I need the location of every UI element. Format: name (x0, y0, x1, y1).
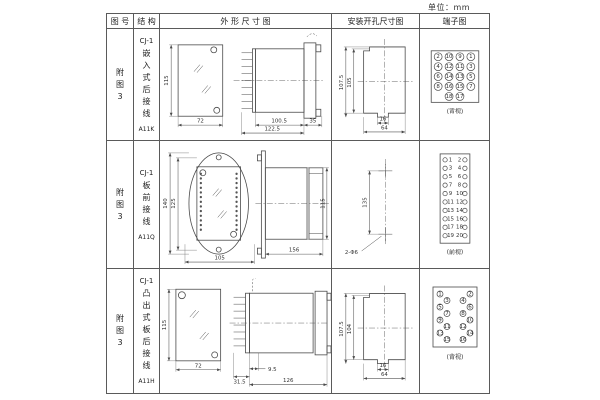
terminal-pins: 210914121136141358161571817 (434, 53, 475, 101)
fig-number-text: 附图3 (116, 187, 125, 223)
fig-number-row1: 附图3 (107, 29, 134, 141)
terminal-diagram-a11q: 1234567891011121314151617181920 (前视) (420, 141, 489, 268)
outline-drawing-cell-row1: 115 72 100.5 35 122.5 (160, 29, 332, 141)
svg-text:72: 72 (197, 119, 204, 125)
svg-text:5: 5 (449, 174, 452, 180)
svg-text:125: 125 (171, 198, 177, 208)
model-code-label: A11K (139, 126, 155, 133)
svg-text:2: 2 (458, 157, 461, 163)
view-label: (前视) (447, 248, 464, 256)
svg-text:105: 105 (215, 256, 225, 262)
terminal-diagram-cell-row1: 210914121136141358161571817 (背视) (420, 29, 489, 141)
model-label: CJ-1 (140, 37, 154, 45)
svg-text:10: 10 (456, 191, 463, 197)
terminal-pins: 12345678910111213141516 (437, 291, 474, 343)
svg-text:15: 15 (447, 216, 454, 222)
view-label: (背视) (447, 353, 464, 361)
svg-text:3: 3 (449, 166, 453, 172)
model-label: CJ-1 (140, 277, 154, 285)
svg-text:10: 10 (467, 317, 474, 323)
svg-text:135: 135 (363, 197, 369, 207)
header-terminal-diagram: 端子图 (420, 14, 489, 29)
svg-text:17: 17 (447, 225, 454, 231)
terminal-diagram-a11k: 210914121136141358161571817 (背视) (420, 29, 489, 140)
svg-text:2: 2 (468, 291, 472, 297)
svg-text:15: 15 (444, 337, 451, 343)
structure-row3: CJ-1 凸出式板后接线 A11H (134, 269, 160, 393)
svg-text:140: 140 (163, 198, 169, 209)
svg-text:1: 1 (469, 54, 472, 60)
svg-text:10: 10 (446, 54, 453, 60)
svg-text:16: 16 (379, 363, 386, 369)
model-label: CJ-1 (140, 169, 154, 177)
svg-text:64: 64 (381, 372, 388, 378)
svg-text:16: 16 (460, 337, 467, 343)
svg-text:9: 9 (458, 54, 462, 60)
header-mounting-holes: 安装开孔尺寸图 (332, 14, 420, 29)
fig-number-row2: 附图3 (107, 141, 134, 269)
mounting-drawing-cell-row3: 107.5 104 16 64 (332, 269, 420, 393)
outline-drawing-a11q: 140 125 105 156 115 (160, 141, 331, 268)
svg-text:11: 11 (447, 199, 454, 205)
svg-text:14: 14 (446, 74, 453, 80)
svg-text:126: 126 (283, 378, 294, 384)
svg-text:4: 4 (458, 166, 462, 172)
header-structure: 结 构 (134, 14, 160, 29)
view-label: (背视) (447, 107, 464, 115)
svg-text:107.5: 107.5 (339, 321, 345, 337)
svg-text:12: 12 (460, 324, 467, 330)
svg-text:4: 4 (436, 64, 440, 70)
svg-text:2: 2 (436, 54, 439, 60)
dimension-table: 图 号 结 构 外 形 尺 寸 图 安装开孔尺寸图 端子图 附图3 CJ-1 嵌… (106, 13, 490, 394)
outline-drawing-cell-row3: 115 72 9.5 31.5 126 (160, 269, 332, 393)
svg-text:1: 1 (438, 291, 442, 297)
mounting-drawing-cell-row1: 107.5 105 16 64 (332, 29, 420, 141)
mounting-drawing-cell-row2: 135 2-Φ6 (332, 141, 420, 269)
svg-text:8: 8 (458, 183, 462, 189)
header-outline-dimensions: 外 形 尺 寸 图 (160, 14, 332, 29)
fig-number-text: 附图3 (116, 313, 125, 349)
svg-text:14: 14 (456, 208, 463, 214)
hole-spec-label: 2-Φ6 (345, 250, 359, 256)
mounting-hole-drawing-a11k: 107.5 105 16 64 (332, 29, 419, 140)
svg-text:9: 9 (438, 317, 442, 323)
svg-text:1: 1 (449, 157, 452, 163)
terminal-diagram-a11h: 12345678910111213141516 (背视) (420, 269, 489, 393)
svg-text:20: 20 (456, 233, 463, 239)
svg-text:8: 8 (461, 311, 465, 317)
svg-text:6: 6 (468, 304, 472, 310)
svg-text:115: 115 (320, 198, 326, 208)
terminal-diagram-cell-row3: 12345678910111213141516 (背视) (420, 269, 489, 393)
structure-row2: CJ-1 板前接线 A11Q (134, 141, 160, 269)
unit-label: 单位：mm (428, 2, 470, 13)
fig-number-text: 附图3 (116, 67, 125, 103)
svg-text:5: 5 (469, 74, 472, 80)
mounting-hole-drawing-a11h: 107.5 104 16 64 (332, 269, 419, 393)
mounting-hole-drawing-a11q: 135 2-Φ6 (332, 141, 419, 268)
svg-text:3: 3 (445, 298, 449, 304)
svg-text:17: 17 (456, 94, 463, 100)
svg-text:3: 3 (469, 64, 473, 70)
svg-text:115: 115 (164, 75, 170, 85)
svg-text:15: 15 (456, 84, 463, 90)
svg-text:13: 13 (447, 208, 454, 214)
svg-text:11: 11 (456, 64, 463, 70)
outline-drawing-a11k: 115 72 100.5 35 122.5 (160, 29, 331, 140)
fig-number-row3: 附图3 (107, 269, 134, 393)
outline-drawing-a11h: 115 72 9.5 31.5 126 (160, 269, 331, 393)
svg-text:16: 16 (446, 84, 453, 90)
svg-text:19: 19 (447, 233, 454, 239)
svg-text:4: 4 (461, 298, 465, 304)
svg-text:31.5: 31.5 (233, 380, 245, 386)
svg-text:7: 7 (469, 84, 472, 90)
structure-type-label: 板前接线 (142, 180, 151, 228)
structure-type-label: 凸出式板后接线 (142, 288, 151, 372)
svg-text:7: 7 (449, 183, 452, 189)
svg-text:115: 115 (162, 320, 168, 330)
svg-text:107.5: 107.5 (339, 75, 345, 91)
svg-text:6: 6 (436, 74, 440, 80)
svg-text:16: 16 (379, 117, 386, 123)
terminal-diagram-cell-row2: 1234567891011121314151617181920 (前视) (420, 141, 489, 269)
svg-text:12: 12 (446, 64, 453, 70)
svg-text:12: 12 (456, 199, 463, 205)
svg-text:122.5: 122.5 (264, 127, 280, 133)
svg-text:18: 18 (456, 225, 463, 231)
terminal-pins: 1234567891011121314151617181920 (443, 157, 467, 239)
svg-text:100.5: 100.5 (271, 119, 287, 125)
model-code-label: A11H (138, 378, 154, 385)
svg-text:13: 13 (456, 74, 463, 80)
svg-text:13: 13 (437, 330, 444, 336)
catalog-page: 单位：mm 图 号 结 构 外 形 尺 寸 图 安装开孔尺寸图 端子图 附图3 … (0, 0, 600, 400)
svg-text:72: 72 (195, 363, 202, 369)
svg-text:18: 18 (446, 94, 453, 100)
svg-text:7: 7 (445, 311, 449, 317)
svg-text:5: 5 (438, 304, 442, 310)
svg-text:11: 11 (444, 324, 451, 330)
svg-text:156: 156 (289, 248, 300, 254)
svg-text:9: 9 (449, 191, 453, 197)
model-code-label: A11Q (138, 234, 154, 241)
header-fig-number: 图 号 (107, 14, 134, 29)
structure-row1: CJ-1 嵌入式后接线 A11K (134, 29, 160, 141)
svg-text:35: 35 (309, 119, 316, 125)
svg-text:105: 105 (347, 77, 353, 87)
svg-text:104: 104 (347, 323, 353, 334)
svg-text:16: 16 (456, 216, 463, 222)
svg-text:14: 14 (467, 330, 474, 336)
svg-text:8: 8 (436, 84, 440, 90)
svg-text:6: 6 (458, 174, 462, 180)
structure-type-label: 嵌入式后接线 (142, 48, 151, 120)
outline-drawing-cell-row2: 140 125 105 156 115 (160, 141, 332, 269)
svg-text:9.5: 9.5 (268, 367, 277, 373)
svg-text:64: 64 (381, 125, 388, 131)
